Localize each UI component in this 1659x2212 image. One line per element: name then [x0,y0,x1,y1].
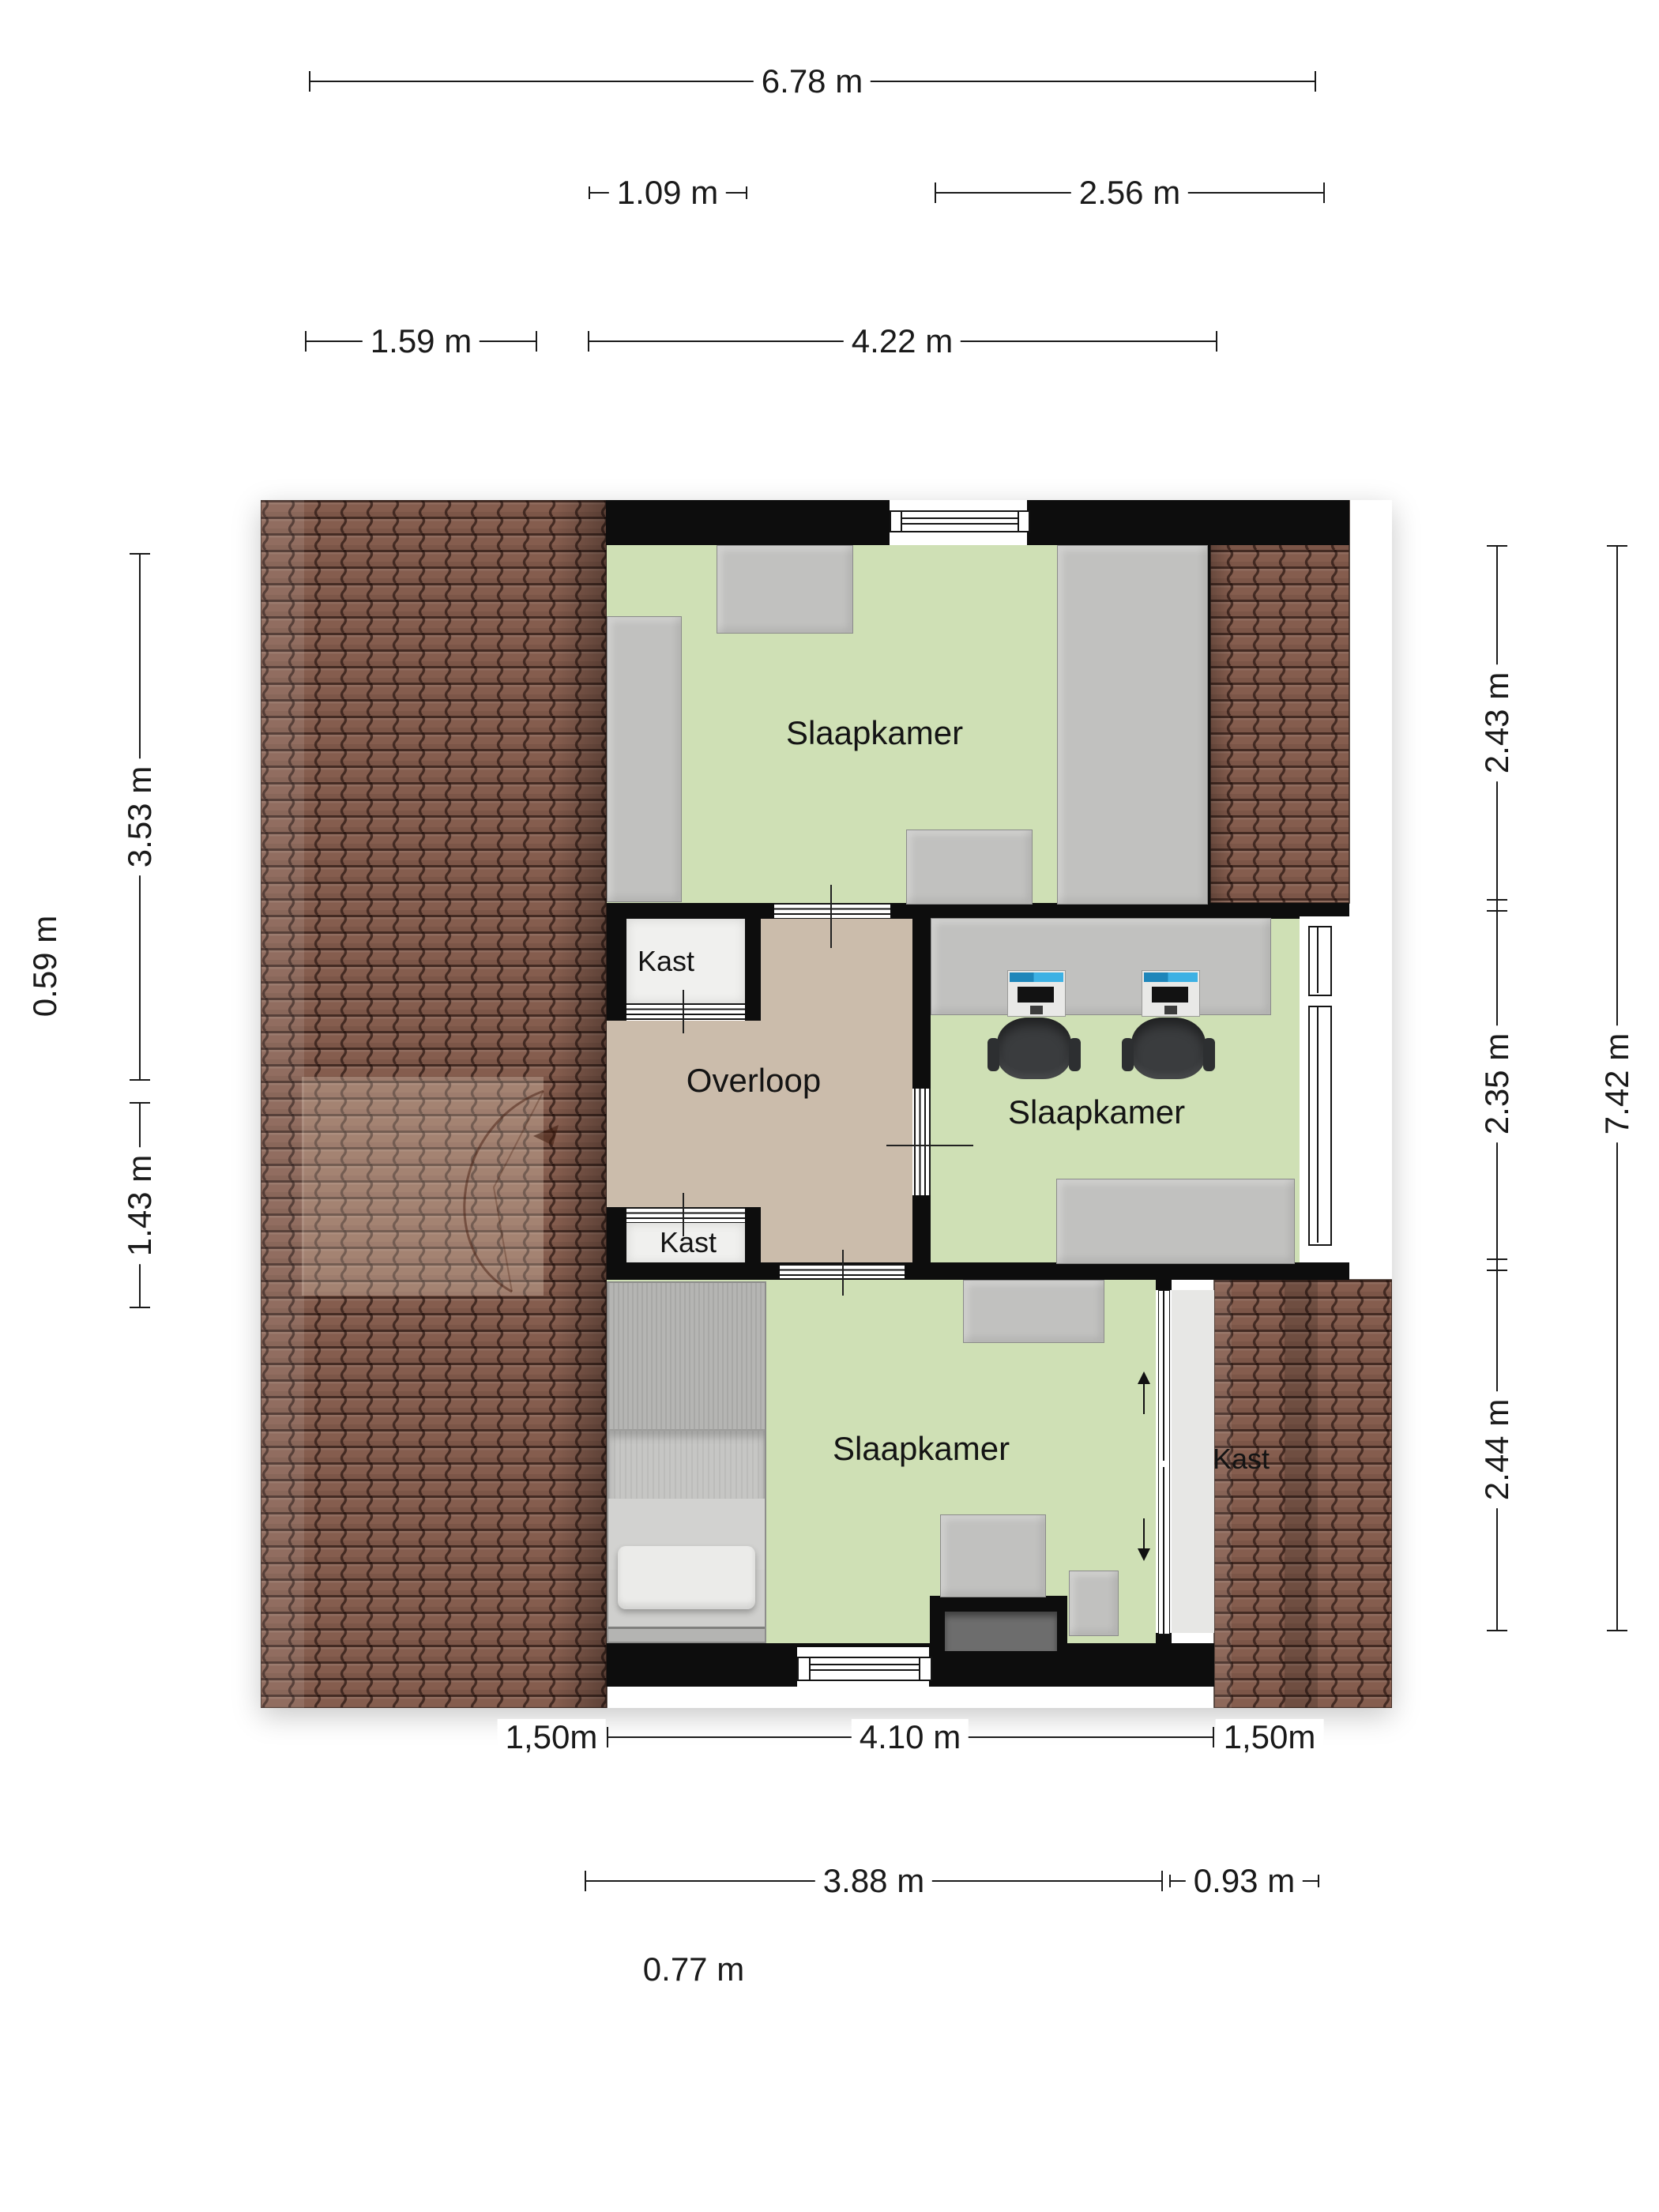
window-right-mullion [1317,926,1319,993]
chimney-flue [942,1609,1059,1653]
wall-mid-upper [607,903,1349,919]
cabinet-bottom-bedroom-small [1069,1571,1119,1636]
bed [607,1281,766,1643]
arrow-up-icon [1143,1381,1145,1414]
window-top-frame [899,510,1021,532]
window-post [797,1657,811,1681]
door-axis [830,885,832,948]
wall-slide-stub-bottom [1156,1633,1172,1645]
dim-bottom-row3: 0.77 m [635,1951,752,1988]
door-bedroom-top [774,903,890,919]
door-axis [886,1145,973,1146]
cabinet-bottom-bedroom-top [963,1280,1104,1343]
mouse-icon [1030,1006,1043,1014]
dim-bottom-right-label: 1,50m [1216,1719,1324,1755]
window-right-frame-lower [1308,1006,1332,1246]
room-label-bedroom-top: Slaapkamer [786,714,963,752]
arrow-down-icon [1143,1518,1145,1552]
window-right-frame-upper [1308,926,1332,996]
roof-top-right [1210,500,1349,903]
office-chair-2 [1131,1018,1206,1079]
window-post [1018,510,1030,532]
dormer-exterior [1349,919,1392,1262]
wall-closet-lower-right [745,1207,761,1280]
wall-landing-east-b [912,1195,931,1280]
door-axis [842,1250,844,1296]
office-chair-1 [997,1018,1071,1079]
keyboard-icon [1152,987,1188,1003]
wall-closet-lower-left [607,1207,626,1280]
window-right-mullion [1317,1006,1319,1243]
room-label-closet-right: Kast [1213,1443,1270,1476]
floor-closet-right [1172,1290,1214,1633]
dresser-mid-bedroom [1056,1179,1295,1264]
room-label-closet-upper: Kast [638,945,694,978]
arrow-up-head-icon [1138,1371,1150,1384]
window-bottom-frame [807,1657,922,1681]
monitor-screen-icon [1010,972,1063,982]
arrow-down-head-icon [1138,1548,1150,1561]
dresser-top [717,545,853,634]
window-post [919,1657,932,1681]
wall-closet-upper-left [607,903,626,1021]
door-bedroom-mid [914,1089,931,1195]
room-label-landing: Overloop [687,1062,821,1100]
cabinet-bottom-bedroom-right [940,1514,1046,1597]
dim-left-offset: 0.59 m [27,908,63,1025]
roof-left [261,500,607,1708]
wall-landing-east-a [912,919,931,1089]
sliding-door-break [1159,1461,1168,1467]
door-closet-lower [626,1207,745,1223]
cabinet-top-bedroom [906,829,1033,905]
room-label-bedroom-bottom: Slaapkamer [833,1430,1010,1468]
roof-bottom-right [1214,1280,1392,1708]
bed-footboard [608,1627,765,1642]
window-post [890,510,902,532]
bed-fold [608,1431,765,1499]
bed-pillow [618,1546,755,1609]
wall-mid-lower [607,1262,1349,1280]
wall-slide-stub-top [1156,1277,1172,1290]
room-label-bedroom-mid: Slaapkamer [1008,1093,1185,1131]
door-axis [683,990,684,1033]
wardrobe-right [1057,545,1208,905]
mouse-icon [1164,1006,1177,1014]
dim-bottom-left-label: 1,50m [498,1719,606,1755]
room-label-closet-lower: Kast [660,1226,717,1259]
floor-landing-west [607,1021,761,1207]
monitor-screen-icon [1144,972,1198,982]
door-closet-upper [626,1003,745,1021]
desk [931,918,1271,1015]
wall-closet-upper-right [745,903,761,1021]
computer-workstation-2 [1142,970,1200,1017]
bed-duvet [608,1283,765,1431]
wardrobe-left [607,616,682,902]
keyboard-icon [1018,987,1054,1003]
computer-workstation-1 [1007,970,1066,1017]
